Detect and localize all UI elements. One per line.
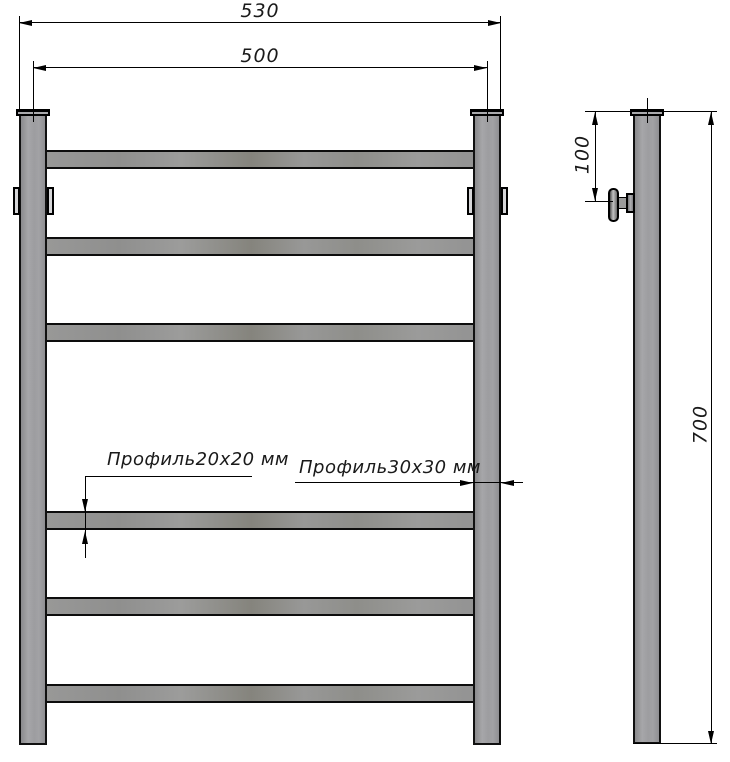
profile-30x30-leader-line xyxy=(295,482,523,483)
ext-line-530-left xyxy=(19,16,20,111)
profile-20x20-arrow-bottom xyxy=(82,531,88,544)
ext-line-valve xyxy=(585,201,613,202)
profile-20x20-leader-vline xyxy=(85,476,86,558)
dim-100-arrow-top xyxy=(592,112,598,125)
side-post-centerline-tick xyxy=(647,98,648,123)
dim-700-label: 700 xyxy=(692,395,711,455)
crossbar-3 xyxy=(40,323,480,342)
wall-bracket-left-outer xyxy=(13,187,20,215)
crossbar-1 xyxy=(40,150,480,169)
dim-500-arrow-left xyxy=(33,65,46,71)
dim-530-label: 530 xyxy=(19,2,501,21)
dim-700-arrow-top xyxy=(708,112,714,125)
dim-530-arrow-right xyxy=(488,20,501,26)
profile-30x30-arrow-right xyxy=(501,480,514,486)
front-left-post xyxy=(19,110,47,745)
dim-500-line xyxy=(33,67,487,68)
wall-bracket-right-inner xyxy=(467,187,474,215)
crossbar-6 xyxy=(40,684,480,703)
profile-30x30-arrow-left xyxy=(460,480,473,486)
crossbar-4 xyxy=(40,511,480,530)
ext-line-bottom xyxy=(633,743,717,744)
dim-100-arrow-bottom xyxy=(592,188,598,201)
profile-20x20-label: Профиль20х20 мм xyxy=(107,451,289,469)
crossbar-2 xyxy=(40,237,480,256)
dim-700-arrow-bottom xyxy=(708,731,714,744)
profile-20x20-arrow-top xyxy=(82,499,88,512)
dim-530-arrow-left xyxy=(19,20,32,26)
wall-bracket-left-inner xyxy=(47,187,54,215)
crossbar-5 xyxy=(40,597,480,616)
profile-20x20-leader-underline xyxy=(85,476,252,477)
ext-line-500-right xyxy=(487,61,488,122)
ext-line-530-right xyxy=(500,16,501,111)
dim-500-arrow-right xyxy=(474,65,487,71)
dim-530-line xyxy=(19,22,501,23)
wall-bracket-right-outer xyxy=(501,187,508,215)
dim-100-label: 100 xyxy=(574,125,593,185)
dim-500-label: 500 xyxy=(33,47,487,66)
profile-30x30-label: Профиль30х30 мм xyxy=(299,459,481,477)
front-right-post xyxy=(473,110,501,745)
technical-drawing-canvas: 530 500 Профиль20х20 мм Профиль30х30 мм xyxy=(0,0,730,762)
valve-nut xyxy=(626,193,635,213)
side-post xyxy=(633,110,661,744)
